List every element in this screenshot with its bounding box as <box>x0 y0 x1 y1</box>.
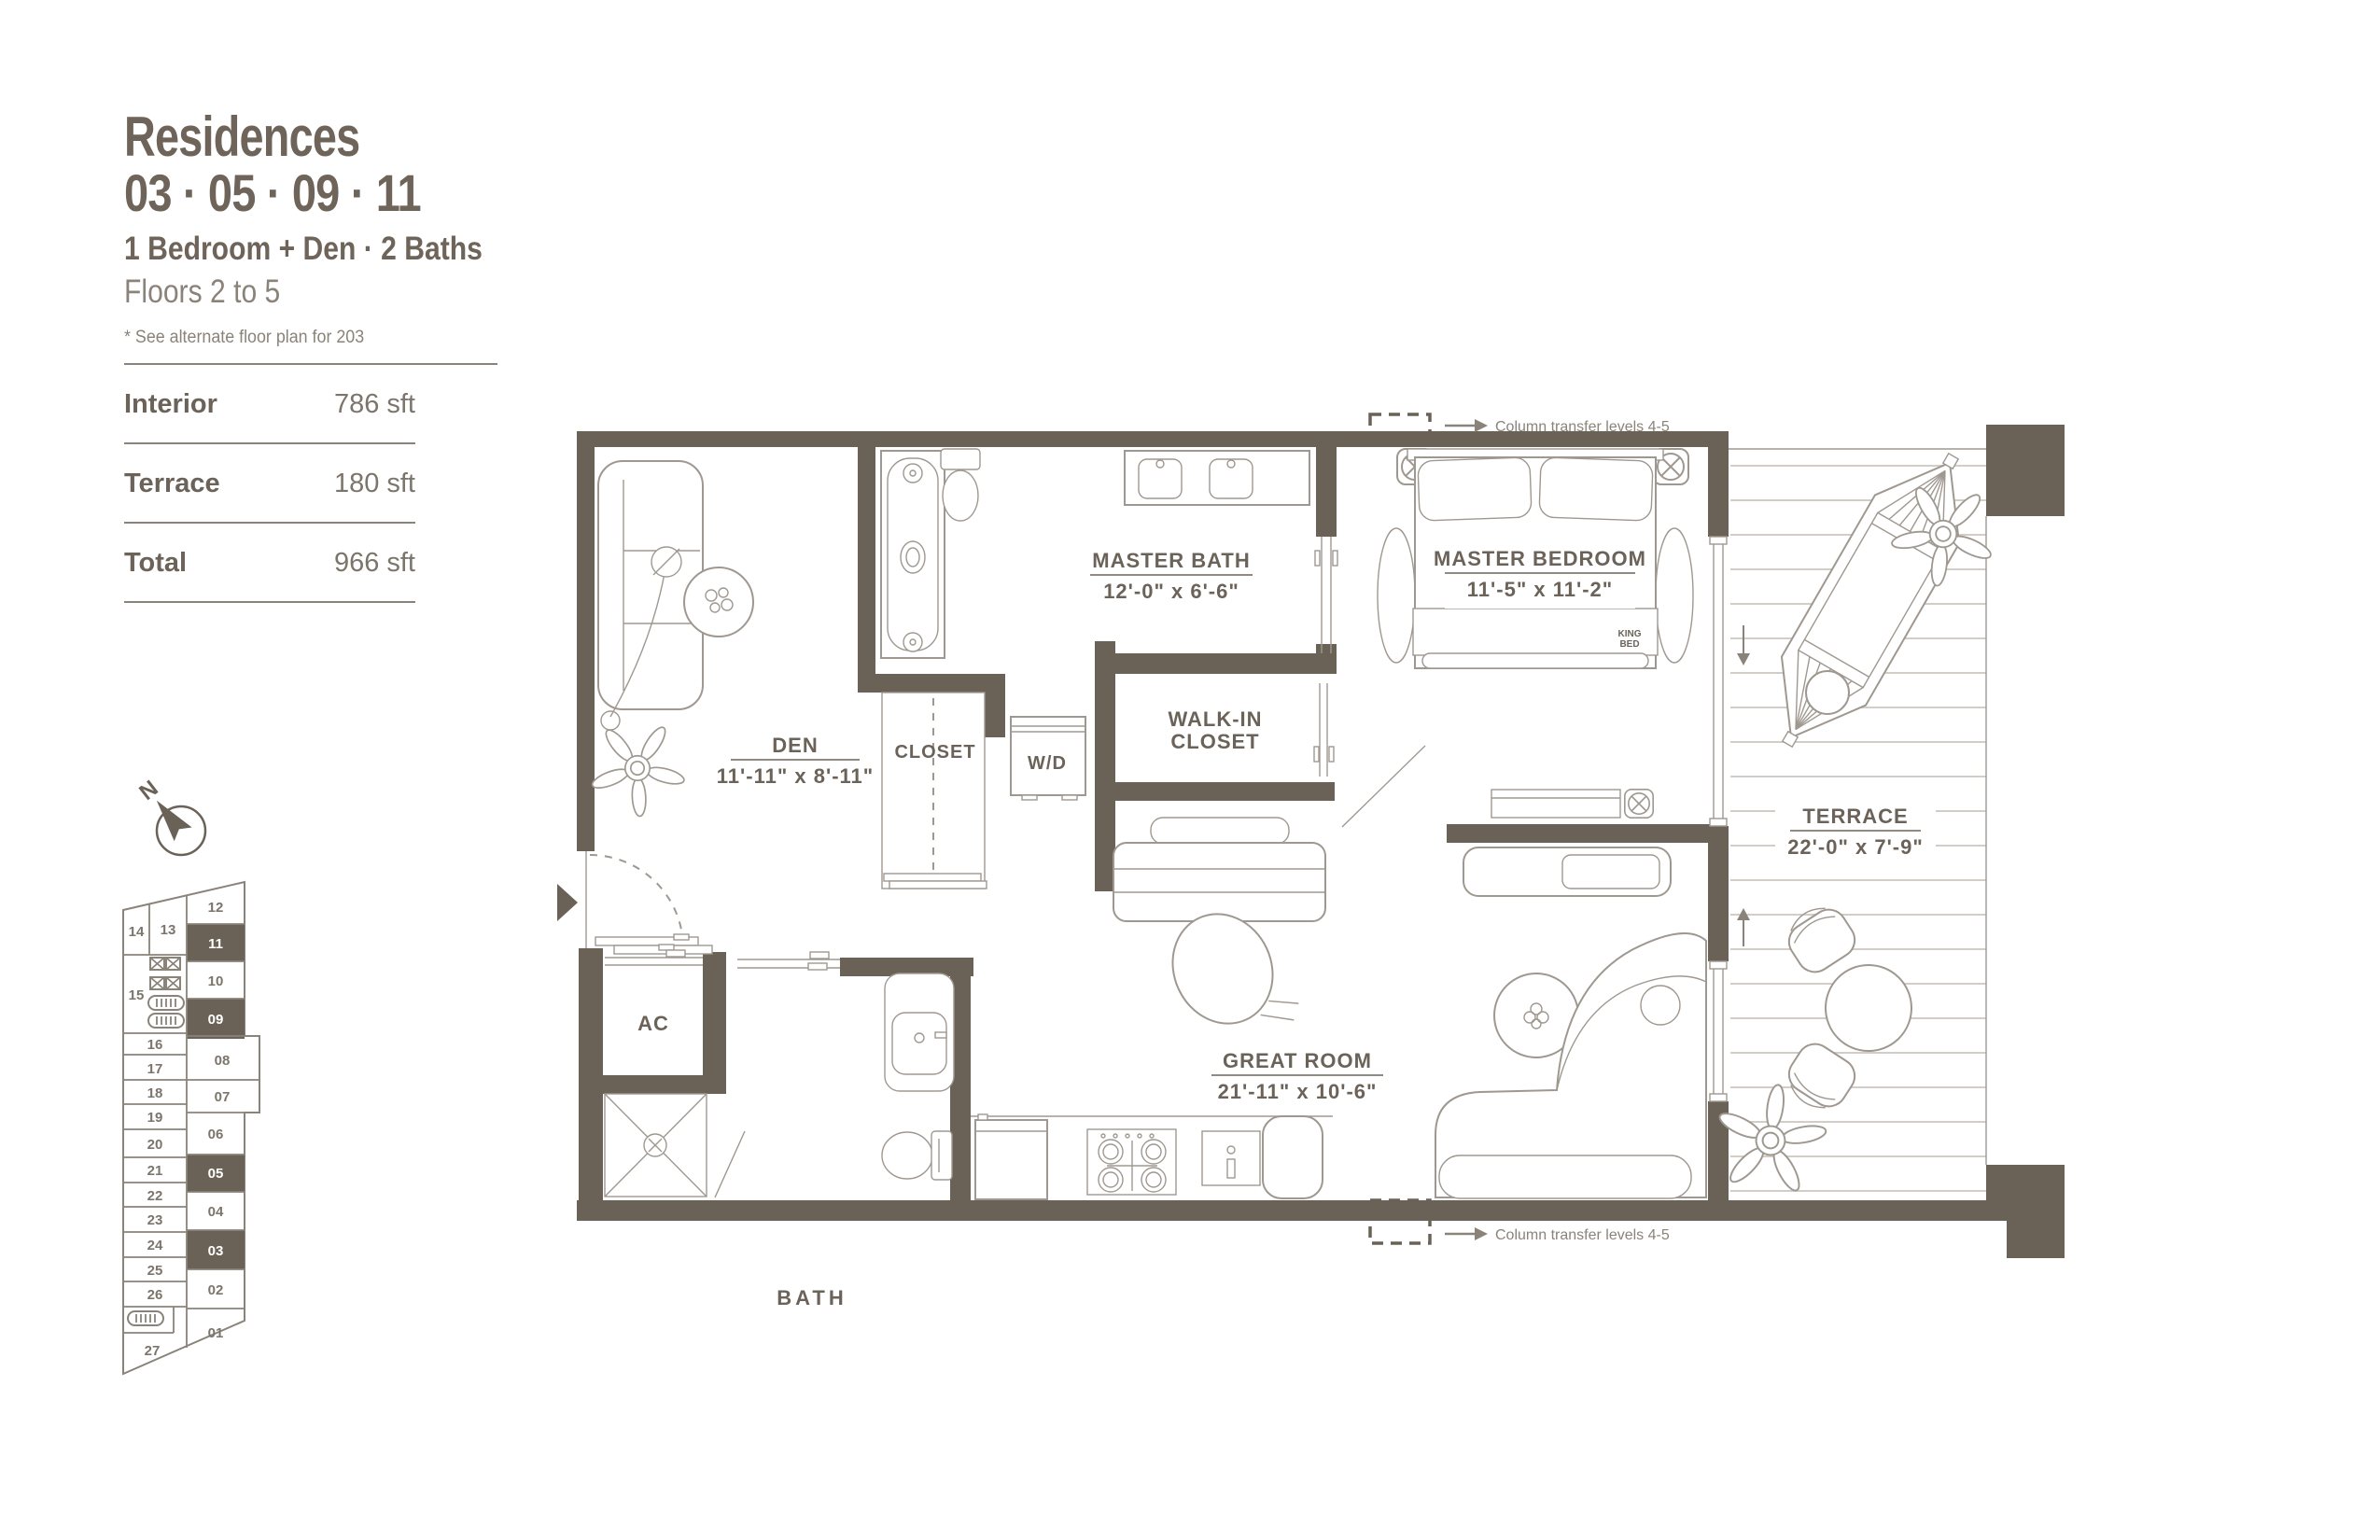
keyplan-unit: 24 <box>147 1238 163 1253</box>
keyplan-unit: 12 <box>208 900 224 916</box>
master-bedroom-name: MASTER BEDROOM <box>1434 547 1646 570</box>
toilet <box>941 449 980 521</box>
keyplan-unit: 04 <box>208 1204 224 1220</box>
keyplan-unit: 06 <box>208 1127 224 1142</box>
compass-north-label: N <box>134 776 162 805</box>
great-room-dims: 21'-11" x 10'-6" <box>1218 1080 1378 1103</box>
room-label-den: DEN 11'-11" x 8'-11" <box>717 734 874 788</box>
room-label-master-bath: MASTER BATH 12'-0" x 6'-6" <box>1090 549 1253 603</box>
keyplan-unit: 13 <box>161 922 176 938</box>
shower <box>605 1094 707 1197</box>
den-dims: 11'-11" x 8'-11" <box>717 764 874 788</box>
plant-icon <box>583 711 696 827</box>
keyplan: 12 11 10 09 08 07 06 05 04 03 02 01 14 1… <box>123 882 259 1374</box>
dresser <box>1491 790 1653 818</box>
column-transfer-note: Column transfer levels 4-5 <box>1495 419 1670 435</box>
keyplan-unit: 15 <box>129 987 145 1003</box>
keyplan-unit: 16 <box>147 1037 163 1053</box>
keyplan-unit: 18 <box>147 1085 163 1101</box>
arrow-icon <box>1475 419 1488 432</box>
keyplan-unit: 01 <box>208 1325 224 1341</box>
hall-closet <box>882 693 987 889</box>
cooktop <box>1087 1129 1176 1195</box>
room-label-terrace: TERRACE 22'-0" x 7'-9" <box>1775 799 1936 864</box>
great-room-name: GREAT ROOM <box>1223 1049 1372 1072</box>
sectional-sofa <box>1435 933 1706 1198</box>
master-bedroom-dims: 11'-5" x 11'-2" <box>1467 578 1613 601</box>
walk-in-line2: CLOSET <box>1170 730 1259 753</box>
den-name: DEN <box>772 734 818 757</box>
keyplan-unit: 26 <box>147 1287 163 1303</box>
keyplan-unit: 09 <box>208 1012 224 1028</box>
keyplan-unit: 10 <box>208 973 224 989</box>
keyplan-unit: 19 <box>147 1110 163 1126</box>
room-label-walk-in-closet: WALK-IN CLOSET <box>1168 707 1262 753</box>
king-bed-label: BED <box>1619 639 1639 650</box>
keyplan-unit: 02 <box>208 1282 224 1298</box>
walk-in-line1: WALK-IN <box>1168 707 1262 731</box>
keyplan-unit: 14 <box>129 924 145 940</box>
compass: N <box>133 774 205 855</box>
toilet <box>882 1131 952 1180</box>
master-bath-name: MASTER BATH <box>1092 549 1250 572</box>
room-label-bath: BATH <box>777 1286 847 1309</box>
floorplan-page: Residences 03 · 05 · 09 · 11 1 Bedroom +… <box>0 0 2380 1540</box>
entry-closet-slider <box>595 934 712 954</box>
terrace-dims: 22'-0" x 7'-9" <box>1787 835 1924 859</box>
master-bedroom-furniture: KING BED <box>1378 449 1693 818</box>
room-label-closet: CLOSET <box>894 742 975 763</box>
keyplan-unit: 20 <box>147 1137 163 1153</box>
keyplan-unit: 11 <box>208 936 223 952</box>
refrigerator <box>975 1114 1047 1199</box>
arrow-icon <box>1475 1227 1488 1240</box>
master-bath-dims: 12'-0" x 6'-6" <box>1103 580 1239 603</box>
floor-plan-drawing: N <box>0 0 2380 1540</box>
room-label-wd: W/D <box>1028 753 1067 774</box>
keyplan-unit: 08 <box>215 1053 231 1069</box>
terrace-name: TERRACE <box>1802 805 1908 828</box>
king-bed-label: KING <box>1618 629 1642 639</box>
keyplan-unit: 03 <box>208 1243 224 1259</box>
terrace-table <box>1826 965 1911 1051</box>
column-transfer-note: Column transfer levels 4-5 <box>1495 1227 1670 1243</box>
column-symbol-icon <box>1625 790 1653 818</box>
bathtub <box>881 451 945 658</box>
keyplan-unit: 22 <box>147 1188 163 1204</box>
keyplan-unit: 25 <box>147 1263 163 1279</box>
bath-vanity <box>885 973 954 1091</box>
coffee-table <box>684 567 753 637</box>
side-table <box>1806 671 1849 714</box>
entry-marker-icon <box>557 884 578 921</box>
kitchen <box>971 1114 1333 1199</box>
keyplan-unit: 23 <box>147 1212 163 1228</box>
double-vanity <box>1125 451 1309 505</box>
room-label-great-room: GREAT ROOM 21'-11" x 10'-6" <box>1211 1049 1383 1103</box>
room-label-ac: AC <box>637 1012 669 1035</box>
keyplan-unit: 27 <box>145 1343 161 1359</box>
keyplan-unit: 17 <box>147 1061 163 1077</box>
keyplan-unit: 21 <box>147 1163 163 1179</box>
kitchen-sink <box>1202 1131 1260 1185</box>
sofa <box>598 461 703 709</box>
dining-set <box>1113 818 1325 1058</box>
tv-console <box>1463 847 1671 896</box>
keyplan-unit: 07 <box>215 1089 231 1105</box>
entry-door-swing <box>590 855 683 948</box>
kitchen-cabinet <box>1263 1116 1323 1198</box>
keyplan-unit: 05 <box>208 1166 224 1182</box>
